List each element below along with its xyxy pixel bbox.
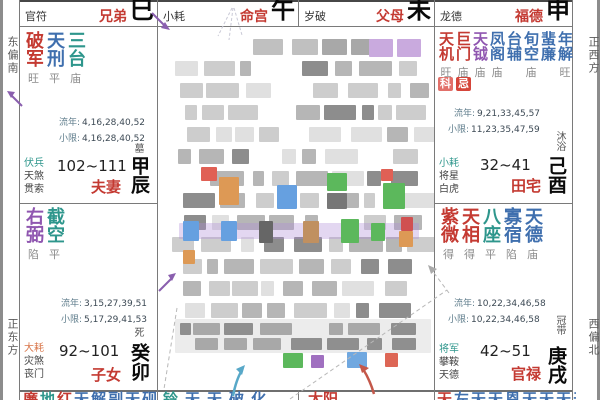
star-column: 破军旺 bbox=[24, 31, 43, 82]
star-status: 陷 bbox=[506, 246, 517, 258]
redacted-block bbox=[348, 83, 377, 98]
branch-label: 巳 bbox=[130, 0, 154, 24]
redacted-block bbox=[348, 323, 380, 335]
palace-cell-mao: 右弼陷截空平 流年:3,15,27,39,51 小限:5,17,29,41,53… bbox=[19, 203, 157, 390]
redacted-block bbox=[296, 105, 320, 120]
redacted-block bbox=[260, 259, 294, 274]
xiaoxian-values: 11,23,35,47,59 bbox=[471, 125, 540, 135]
star-status: 平 bbox=[49, 246, 60, 258]
cutoff-star-char: 天 bbox=[74, 391, 89, 400]
star-column: 天钺庙 bbox=[472, 31, 488, 76]
star-name: 八座 bbox=[481, 207, 500, 243]
liunian-values: 3,15,27,39,51 bbox=[84, 299, 147, 309]
star-name: 天德 bbox=[523, 207, 542, 243]
shensha-label: 灾煞 bbox=[24, 355, 44, 368]
branch-label: 癸卯 bbox=[126, 343, 151, 381]
cutoff-star-char: 天 bbox=[185, 391, 200, 400]
redacted-block bbox=[199, 149, 224, 164]
cutoff-star-char: 左 bbox=[454, 391, 469, 400]
liunian-row: 流年:9,21,33,45,57 bbox=[454, 106, 540, 119]
star-name: 蜚廉 bbox=[540, 31, 556, 61]
year-god-label: 官符 bbox=[25, 8, 47, 24]
compass-label-west: 正西方 bbox=[585, 36, 600, 75]
star-name: 截空 bbox=[45, 207, 64, 243]
redacted-block bbox=[351, 127, 382, 142]
compass-label-west-north: 西偏北 bbox=[585, 318, 600, 357]
year-god-label: 龙德 bbox=[440, 8, 462, 24]
star-name: 天钺 bbox=[472, 31, 488, 61]
shensha-label: 天德 bbox=[439, 369, 459, 382]
star-status: 旺 bbox=[560, 64, 571, 76]
xiaoxian-label: 小限: bbox=[448, 315, 469, 325]
palace-name: 夫妻 bbox=[91, 176, 121, 197]
redacted-block bbox=[224, 259, 254, 274]
star-status: 旺 bbox=[28, 70, 39, 82]
redacted-block bbox=[256, 193, 274, 208]
cutoff-star-char: 化 bbox=[251, 391, 266, 400]
redacted-block bbox=[334, 303, 350, 318]
redacted-block bbox=[183, 221, 199, 241]
redacted-block bbox=[397, 39, 421, 57]
liunian-values: 4,16,28,40,52 bbox=[82, 118, 145, 128]
star-column: 八座平 bbox=[481, 207, 500, 258]
redacted-block bbox=[401, 217, 413, 231]
redacted-block bbox=[232, 281, 258, 296]
redacted-block bbox=[183, 193, 215, 208]
liunian-values: 9,21,33,45,57 bbox=[477, 109, 540, 119]
top-strip-cell-si: 官符 兄弟 巳 bbox=[19, 0, 157, 26]
palace-name: 父母 bbox=[376, 6, 404, 26]
redacted-block bbox=[302, 149, 316, 164]
redacted-block bbox=[312, 281, 337, 296]
shensha-label: 贯索 bbox=[24, 183, 44, 196]
cutoff-star-char: 太阳 bbox=[308, 391, 338, 400]
sihua-badge: 科 bbox=[438, 77, 453, 91]
star-list: 紫微得天相得八座平寡宿陷天德庙 bbox=[439, 207, 542, 258]
redacted-block bbox=[178, 149, 191, 164]
shensha-label: 天煞 bbox=[24, 170, 44, 183]
star-status: 得 bbox=[464, 246, 475, 258]
star-name: 凤阁 bbox=[489, 31, 505, 61]
redacted-block bbox=[414, 127, 434, 142]
star-column: 旬空庙 bbox=[523, 31, 539, 76]
redacted-block bbox=[410, 83, 428, 98]
redacted-block bbox=[260, 323, 292, 335]
cutoff-star-char: 天 bbox=[471, 391, 486, 400]
redacted-block bbox=[224, 323, 253, 335]
redacted-block bbox=[388, 259, 412, 274]
redacted-block bbox=[183, 281, 201, 296]
redacted-block bbox=[396, 105, 427, 120]
shensha-list: 小耗将星白虎 bbox=[439, 157, 459, 196]
redacted-block bbox=[180, 323, 191, 335]
star-column: 年解旺 bbox=[557, 31, 573, 76]
liunian-label: 流年: bbox=[59, 118, 80, 128]
redacted-block bbox=[325, 149, 358, 164]
star-name: 年解 bbox=[557, 31, 573, 61]
star-list: 右弼陷截空平 bbox=[24, 207, 64, 258]
redacted-block bbox=[302, 61, 329, 76]
cutoff-star-char: 天 bbox=[556, 391, 571, 400]
xiaoxian-label: 小限: bbox=[448, 125, 469, 135]
cutoff-star-char: 天 bbox=[207, 391, 222, 400]
redacted-block bbox=[195, 338, 218, 350]
redacted-block bbox=[393, 149, 418, 164]
changsheng-label: 冠带 bbox=[553, 315, 565, 335]
compass-label-east-south: 东偏南 bbox=[4, 36, 20, 75]
redacted-block bbox=[180, 83, 203, 98]
star-column: 台辅 bbox=[506, 31, 522, 76]
shensha-label: 丧门 bbox=[24, 368, 44, 381]
star-column: 蜚廉 bbox=[540, 31, 556, 76]
redacted-block bbox=[369, 39, 393, 57]
palace-name: 田宅 bbox=[511, 175, 541, 196]
redacted-block bbox=[277, 185, 297, 209]
cutoff-star-char: 天 bbox=[488, 391, 503, 400]
redacted-block bbox=[283, 281, 303, 296]
star-column: 凤阁庙 bbox=[489, 31, 505, 76]
redacted-block bbox=[216, 127, 232, 142]
xiaoxian-row: 小限:10,22,34,46,58 bbox=[448, 312, 540, 325]
star-name: 右弼 bbox=[24, 207, 43, 243]
redacted-block bbox=[331, 259, 351, 274]
age-range: 42~51 bbox=[480, 342, 531, 360]
redacted-block bbox=[235, 127, 254, 142]
star-status: 庙 bbox=[458, 64, 469, 76]
star-column: 右弼陷 bbox=[24, 207, 43, 258]
redacted-block bbox=[282, 149, 296, 164]
palace-name: 官禄 bbox=[511, 363, 541, 384]
redacted-block bbox=[383, 183, 405, 209]
cutoff-star-char: 铃 bbox=[163, 391, 178, 400]
redacted-block bbox=[322, 39, 347, 55]
redacted-block bbox=[294, 303, 327, 318]
xiaoxian-values: 5,17,29,41,53 bbox=[84, 315, 147, 325]
star-column: 巨门庙 bbox=[455, 31, 471, 76]
changsheng-label: 墓 bbox=[131, 143, 143, 153]
star-status: 陷 bbox=[28, 246, 39, 258]
star-column: 寡宿陷 bbox=[502, 207, 521, 258]
shensha-list: 大耗灾煞丧门 bbox=[24, 342, 44, 381]
cutoff-star-char: 红 bbox=[57, 391, 72, 400]
redacted-block bbox=[185, 303, 205, 318]
redacted-block bbox=[327, 338, 359, 350]
branch-label: 午 bbox=[271, 0, 295, 24]
palace-name: 子女 bbox=[91, 364, 121, 385]
liunian-values: 10,22,34,46,58 bbox=[477, 299, 546, 309]
star-name: 天刑 bbox=[45, 31, 64, 67]
redacted-block bbox=[347, 352, 367, 368]
compass-label-east: 正东方 bbox=[4, 318, 20, 357]
redacted-block bbox=[219, 177, 239, 205]
cutoff-star-char: 砚 bbox=[142, 391, 157, 400]
redacted-block bbox=[392, 338, 416, 350]
redacted-block bbox=[209, 281, 230, 296]
liunian-row: 流年:3,15,27,39,51 bbox=[61, 296, 147, 309]
star-status: 庙 bbox=[492, 64, 503, 76]
star-name: 台辅 bbox=[506, 31, 522, 61]
redacted-block bbox=[311, 355, 324, 368]
redacted-block bbox=[253, 39, 283, 55]
age-range: 92~101 bbox=[59, 342, 119, 360]
star-column: 三台庙 bbox=[66, 31, 85, 82]
redacted-block bbox=[371, 223, 385, 241]
redacted-block bbox=[399, 61, 417, 76]
redacted-block bbox=[327, 193, 347, 209]
redacted-block bbox=[391, 323, 417, 335]
changsheng-label: 沐浴 bbox=[553, 131, 565, 151]
redacted-block bbox=[202, 105, 225, 120]
redacted-block bbox=[267, 303, 284, 318]
star-name: 天相 bbox=[460, 207, 479, 243]
redacted-block bbox=[335, 61, 352, 76]
branch-label: 庚戌 bbox=[543, 346, 568, 384]
xiaoxian-values: 10,22,34,46,58 bbox=[471, 315, 540, 325]
star-name: 旬空 bbox=[523, 31, 539, 61]
redacted-block bbox=[300, 193, 318, 208]
star-name: 寡宿 bbox=[502, 207, 521, 243]
redacted-block bbox=[313, 83, 338, 98]
redacted-block bbox=[367, 338, 382, 350]
cutoff-star-char: 副 bbox=[108, 391, 123, 400]
shensha-label: 将军 bbox=[439, 343, 459, 356]
redacted-block bbox=[385, 281, 408, 296]
redacted-block bbox=[211, 303, 238, 318]
redacted-block bbox=[283, 353, 303, 368]
redacted-block bbox=[232, 149, 250, 164]
liunian-row: 流年:4,16,28,40,52 bbox=[59, 115, 145, 128]
redacted-block bbox=[240, 61, 251, 76]
redacted-block bbox=[341, 219, 359, 243]
year-god-label: 岁破 bbox=[304, 8, 326, 24]
redacted-block bbox=[387, 127, 408, 142]
redacted-block bbox=[241, 237, 254, 252]
redacted-block bbox=[175, 61, 198, 76]
redacted-block bbox=[367, 171, 381, 186]
branch-label: 己酉 bbox=[543, 156, 568, 194]
branch-label: 未 bbox=[407, 0, 431, 24]
sihua-badges: 科忌 bbox=[438, 77, 471, 91]
palace-cell-you: 天机旺巨门庙天钺庙凤阁庙台辅旬空庙蜚廉年解旺 科忌 流年:9,21,33,45,… bbox=[434, 27, 573, 203]
star-status: 庙 bbox=[527, 246, 538, 258]
shensha-label: 将星 bbox=[439, 170, 459, 183]
palace-name: 命宫 bbox=[240, 6, 268, 26]
star-status: 得 bbox=[443, 246, 454, 258]
cutoff-star-char: 恩 bbox=[505, 391, 520, 400]
palace-cell-chen: 破军旺天刑平三台庙 流年:4,16,28,40,52 小限:4,16,28,40… bbox=[19, 27, 157, 203]
redacted-block bbox=[399, 231, 413, 247]
star-status: 庙 bbox=[475, 64, 486, 76]
cutoff-star-char: 天 bbox=[437, 391, 452, 400]
age-range: 102~111 bbox=[57, 157, 127, 175]
redacted-block bbox=[187, 127, 210, 142]
star-status: 平 bbox=[485, 246, 496, 258]
shensha-label: 伏兵 bbox=[24, 157, 44, 170]
redacted-block bbox=[361, 259, 379, 274]
branch-label: 申 bbox=[546, 0, 570, 24]
star-status: 庙 bbox=[70, 70, 81, 82]
redacted-block bbox=[342, 281, 374, 296]
shensha-label: 白虎 bbox=[439, 183, 459, 196]
top-strip-cell-wei: 岁破 父母 未 bbox=[298, 0, 434, 26]
age-range: 32~41 bbox=[480, 156, 531, 174]
xiaoxian-row: 小限:5,17,29,41,53 bbox=[61, 312, 147, 325]
star-column: 截空平 bbox=[45, 207, 64, 258]
redacted-block bbox=[207, 259, 218, 274]
redacted-block bbox=[183, 250, 195, 264]
shensha-list: 伏兵天煞贯索 bbox=[24, 157, 44, 196]
redacted-block bbox=[296, 171, 328, 186]
redacted-block bbox=[272, 171, 289, 186]
redacted-block bbox=[224, 338, 247, 350]
redacted-block bbox=[291, 338, 321, 350]
redacted-block bbox=[204, 61, 235, 76]
year-god-label: 小耗 bbox=[163, 8, 185, 24]
xiaoxian-label: 小限: bbox=[61, 315, 82, 325]
cutoff-star-char: 天 bbox=[522, 391, 537, 400]
palace-name: 福德 bbox=[515, 6, 543, 26]
bottom-strip-cell: 廉地红天解副天砚 bbox=[19, 391, 161, 400]
sihua-badge: 忌 bbox=[456, 77, 471, 91]
star-name: 紫微 bbox=[439, 207, 458, 243]
redacted-block bbox=[261, 281, 274, 296]
star-status: 庙 bbox=[526, 64, 537, 76]
redacted-block bbox=[303, 221, 319, 243]
redacted-block bbox=[221, 221, 237, 241]
liunian-label: 流年: bbox=[61, 299, 82, 309]
cutoff-star-char: 破 bbox=[229, 391, 244, 400]
xiaoxian-row: 小限:11,23,35,47,59 bbox=[448, 122, 540, 135]
star-name: 天机 bbox=[438, 31, 454, 61]
cutoff-star-char: 廉 bbox=[23, 391, 38, 400]
cutoff-star-char: 天 bbox=[539, 391, 554, 400]
shensha-label: 攀鞍 bbox=[439, 356, 459, 369]
star-name: 破军 bbox=[24, 31, 43, 67]
ziwei-chart-screenshot: 东偏南 正东方 正西方 西偏北 官符 兄弟 巳 小耗 命宫 午 岁破 父母 未 … bbox=[0, 0, 600, 400]
redacted-block bbox=[362, 105, 374, 120]
star-name: 三台 bbox=[66, 31, 85, 67]
redacted-block bbox=[206, 83, 238, 98]
redacted-center-content bbox=[157, 27, 434, 390]
redacted-block bbox=[356, 303, 369, 318]
bottom-strip-cell: 太阳 bbox=[298, 391, 444, 400]
changsheng-label: 死 bbox=[131, 327, 143, 337]
palace-cell-xu: 紫微得天相得八座平寡宿陷天德庙 流年:10,22,34,46,58 小限:10,… bbox=[434, 203, 573, 390]
branch-label: 甲辰 bbox=[126, 156, 151, 194]
star-list: 破军旺天刑平三台庙 bbox=[24, 31, 85, 82]
liunian-row: 流年:10,22,34,46,58 bbox=[454, 296, 546, 309]
redacted-block bbox=[259, 127, 279, 142]
redacted-block bbox=[299, 259, 325, 274]
redacted-block bbox=[379, 303, 411, 318]
palace-name: 兄弟 bbox=[99, 6, 127, 26]
star-name: 巨门 bbox=[455, 31, 471, 61]
redacted-block bbox=[201, 167, 217, 181]
redacted-block bbox=[359, 61, 392, 76]
redacted-block bbox=[364, 193, 375, 208]
top-strip-cell-shen: 龙德 福德 申 bbox=[434, 0, 573, 26]
redacted-block bbox=[259, 221, 273, 243]
left-frame-edge bbox=[0, 0, 3, 400]
cutoff-star-char: 地 bbox=[40, 391, 55, 400]
redacted-block bbox=[253, 338, 281, 350]
redacted-block bbox=[378, 105, 393, 120]
redacted-block bbox=[402, 193, 434, 208]
redacted-block bbox=[246, 83, 272, 98]
redacted-block bbox=[185, 105, 197, 120]
redacted-block bbox=[385, 353, 398, 367]
bottom-strip-cell: 天左天天恩天天天天 bbox=[434, 391, 576, 400]
redacted-block bbox=[193, 323, 220, 335]
liunian-label: 流年: bbox=[454, 109, 475, 119]
star-column: 天刑平 bbox=[45, 31, 64, 82]
shensha-label: 大耗 bbox=[24, 342, 44, 355]
star-column: 天机旺 bbox=[438, 31, 454, 76]
redacted-block bbox=[242, 303, 262, 318]
redacted-block bbox=[327, 173, 347, 191]
redacted-block bbox=[228, 105, 258, 120]
star-status: 平 bbox=[49, 70, 60, 82]
redacted-block bbox=[329, 323, 343, 335]
redacted-block bbox=[292, 39, 319, 55]
star-list: 天机旺巨门庙天钺庙凤阁庙台辅旬空庙蜚廉年解旺 bbox=[438, 31, 573, 76]
cutoff-star-char: 解 bbox=[91, 391, 106, 400]
star-column: 紫微得 bbox=[439, 207, 458, 258]
star-column: 天德庙 bbox=[523, 207, 542, 258]
star-column: 天相得 bbox=[460, 207, 479, 258]
xiaoxian-label: 小限: bbox=[59, 134, 80, 144]
shensha-label: 小耗 bbox=[439, 157, 459, 170]
redacted-block bbox=[388, 83, 401, 98]
redacted-block bbox=[253, 171, 264, 186]
shensha-list: 将军攀鞍天德 bbox=[439, 343, 459, 382]
cutoff-star-char: 天 bbox=[125, 391, 140, 400]
redacted-block bbox=[381, 169, 393, 181]
liunian-label: 流年: bbox=[454, 299, 475, 309]
top-strip-cell-wu: 小耗 命宫 午 bbox=[157, 0, 298, 26]
star-status: 旺 bbox=[441, 64, 452, 76]
redacted-block bbox=[324, 105, 355, 120]
cutoff-star-char: 天 bbox=[573, 391, 576, 400]
redacted-block bbox=[309, 127, 342, 142]
bottom-strip-cell: 铃天天破化 bbox=[157, 391, 304, 400]
